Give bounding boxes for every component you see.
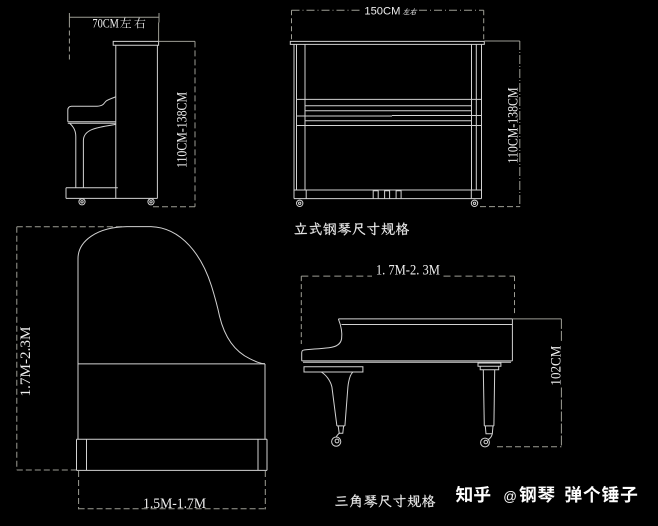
svg-text:1.5M-1.7M: 1.5M-1.7M bbox=[143, 496, 206, 512]
svg-text:150CM: 150CM bbox=[364, 6, 400, 18]
svg-text:70CM: 70CM bbox=[92, 16, 119, 30]
svg-text:110CM-138CM: 110CM-138CM bbox=[175, 92, 191, 168]
svg-text:1. 7M-2. 3M: 1. 7M-2. 3M bbox=[376, 263, 440, 279]
svg-text:1.7M-2.3M: 1.7M-2.3M bbox=[18, 326, 34, 396]
svg-text:110CM-138CM: 110CM-138CM bbox=[505, 87, 521, 163]
svg-text:@: @ bbox=[503, 489, 517, 504]
svg-text:102CM: 102CM bbox=[548, 345, 564, 385]
